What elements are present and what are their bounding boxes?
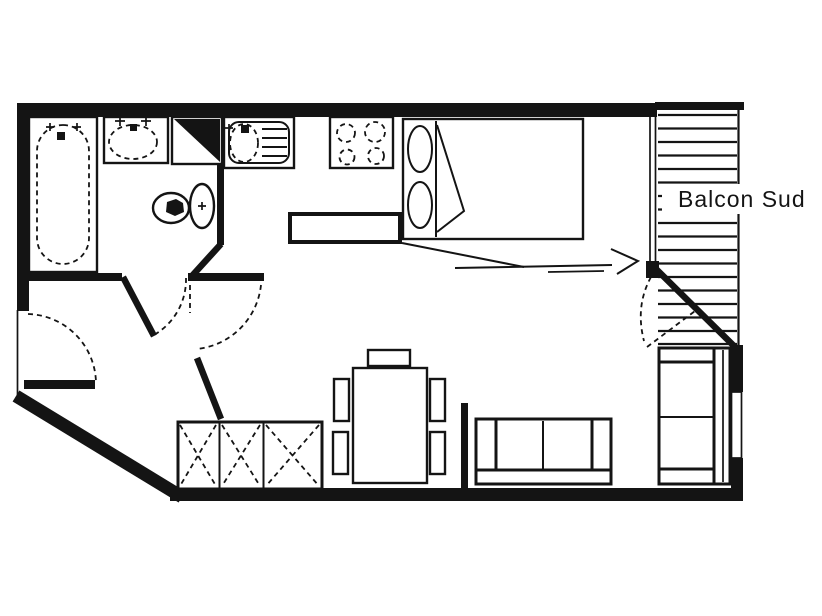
bathroom-door [123, 277, 186, 336]
kitchen-counter-bar [290, 214, 400, 242]
entry-door-swing-arc [28, 314, 96, 384]
loveseat [659, 348, 730, 484]
dining-chair-left-1 [334, 379, 349, 421]
washbasin-counter [104, 117, 168, 163]
entry-door [24, 314, 96, 389]
bathroom-east-wall [217, 161, 224, 245]
bathroom-south-wall-left [17, 273, 122, 281]
balcony: Balcon Sud [658, 108, 816, 346]
north-wall [17, 103, 657, 117]
entry-door-leaf [24, 380, 95, 389]
balcony-label: Balcon Sud [678, 186, 806, 212]
bathroom-fixtures [29, 117, 222, 272]
arrow-shaft-stroke [548, 271, 604, 272]
stove-hob [330, 117, 393, 168]
dining-chair-left-2 [333, 432, 348, 474]
window [732, 392, 742, 458]
water-heater [172, 117, 222, 164]
balcony-door-swing-arc [641, 277, 651, 341]
dining-table [353, 368, 427, 483]
balcony-top-edge [655, 102, 744, 110]
dining-chair-right-2 [430, 432, 445, 474]
arrow-shaft [455, 265, 612, 268]
kitchen [224, 117, 400, 242]
washbasin-faucet-icon [130, 124, 137, 131]
toilet [153, 184, 214, 228]
bathroom-south-wall-right [188, 273, 264, 281]
direction-arrow [402, 243, 638, 274]
floor-plan: Balcon Sud [0, 0, 822, 616]
dining-chair-right-1 [430, 379, 445, 421]
arrow-head-icon [611, 249, 638, 274]
bathroom-door-leaf [123, 277, 154, 336]
arrow-lead-line [402, 243, 524, 267]
bathtub [29, 117, 97, 272]
double-bed [403, 119, 583, 239]
southwest-diagonal-wall [16, 396, 182, 497]
wardrobe [178, 422, 322, 489]
sofa [476, 419, 611, 484]
living-room-door [190, 285, 261, 419]
east-wall-upper [731, 345, 743, 392]
dining-chair-top [368, 350, 410, 366]
wardrobe-frame [178, 422, 322, 489]
bathroom-door-swing-arc [154, 278, 186, 335]
east-wall-lower [731, 458, 743, 501]
living-wall-stub [461, 403, 468, 489]
living-door-swing-arc [197, 285, 261, 349]
washbasin [104, 117, 168, 163]
living-door-leaf [197, 358, 221, 419]
kitchen-sink [224, 117, 294, 168]
bathtub-faucet-icon [57, 132, 65, 140]
dining-set [333, 350, 445, 483]
sink-counter [224, 117, 294, 168]
sink-faucet-icon [241, 125, 249, 133]
bathroom-corner-wall [191, 244, 221, 277]
balcony-door-leaf [653, 266, 735, 347]
